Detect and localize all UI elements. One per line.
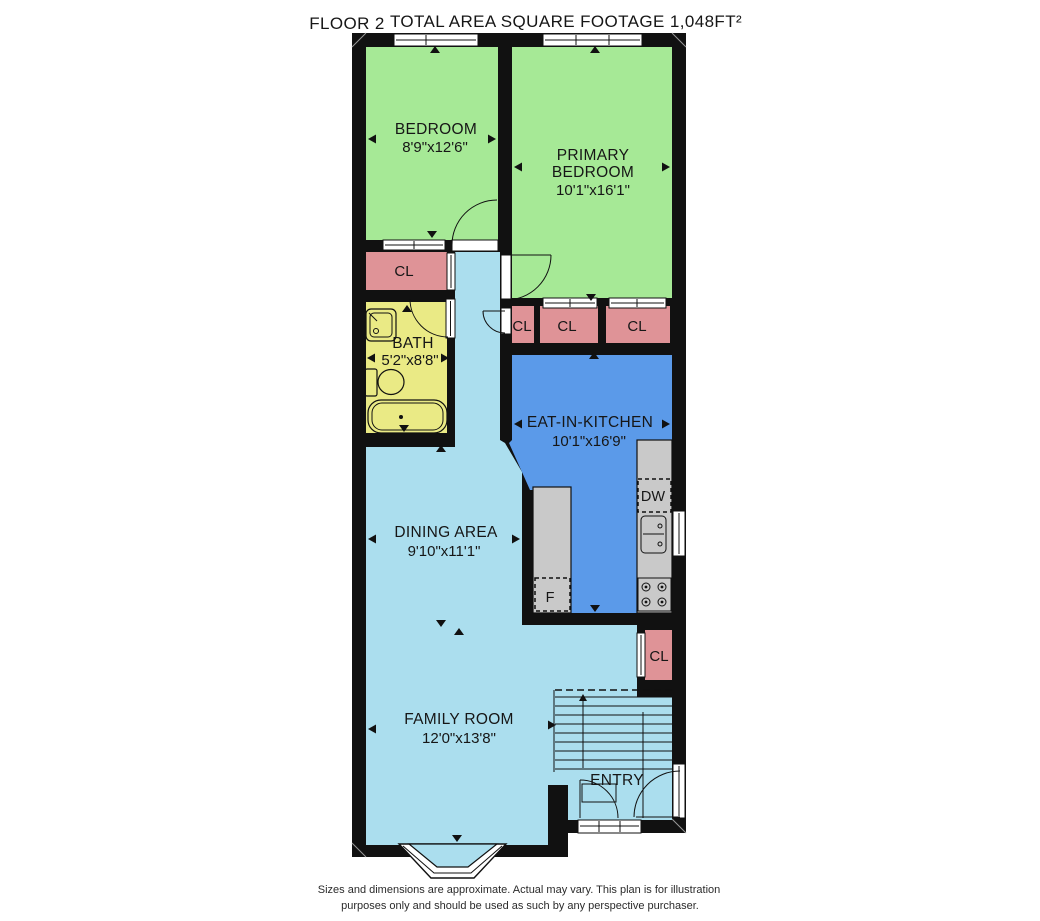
stairs-entry-floor <box>553 690 672 820</box>
kitchen-dims: 10'1"x16'9" <box>552 433 626 450</box>
primary-closet-a-label: CL <box>557 318 576 335</box>
floor-plan-canvas: FLOOR 2 TOTAL AREA SQUARE FOOTAGE 1,048F… <box>0 0 1040 921</box>
floor-label: FLOOR 2 <box>309 14 385 33</box>
kitchen-window <box>673 511 685 556</box>
bedroom-closet-label: CL <box>394 263 413 280</box>
bedroom-label: BEDROOM <box>395 121 477 138</box>
bedroom-dims: 8'9"x12'6" <box>402 139 468 156</box>
primary-bedroom-label-1: PRIMARY <box>557 147 629 164</box>
bath-door-opening <box>446 299 455 338</box>
disclaimer-line-1: Sizes and dimensions are approximate. Ac… <box>318 884 721 896</box>
primary-bedroom-dims: 10'1"x16'1" <box>556 182 630 199</box>
family-room-label: FAMILY ROOM <box>404 711 514 728</box>
bath-dims: 5'2"x8'8" <box>381 352 438 369</box>
primary-door-opening <box>501 255 511 299</box>
primary-closet-a-doors <box>543 298 597 308</box>
primary-bedroom-label-2: BEDROOM <box>552 164 634 181</box>
entry-label: ENTRY <box>590 772 644 789</box>
bedroom-closet-doors <box>383 240 445 250</box>
bedroom-door-opening <box>452 240 498 251</box>
dishwasher-label: DW <box>641 489 665 505</box>
refrigerator-label: F <box>546 590 555 606</box>
small-closet-label: CL <box>512 318 531 335</box>
floor-plan-page: FLOOR 2 TOTAL AREA SQUARE FOOTAGE 1,048F… <box>0 0 1040 921</box>
bath-label: BATH <box>392 335 433 352</box>
family-room-dims: 12'0"x13'8" <box>422 730 496 747</box>
page-title: TOTAL AREA SQUARE FOOTAGE 1,048FT² <box>390 12 742 31</box>
dining-label: DINING AREA <box>394 524 498 541</box>
primary-closet-b-label: CL <box>627 318 646 335</box>
entry-closet-label: CL <box>649 648 668 665</box>
small-closet-opening <box>501 308 511 334</box>
primary-bedroom-window <box>543 34 642 46</box>
dining-dims: 9'10"x11'1" <box>408 543 481 560</box>
primary-closet-b-doors <box>609 298 666 308</box>
entry-window <box>673 764 685 818</box>
kitchen-label: EAT-IN-KITCHEN <box>527 414 653 431</box>
entry-closet-door <box>637 633 645 677</box>
closet-hall-door <box>447 253 455 290</box>
family-entry-wall <box>548 785 568 857</box>
disclaimer-line-2: purposes only and should be used as such… <box>341 900 699 912</box>
bedroom-window <box>394 34 478 46</box>
corridor-floor <box>522 625 637 690</box>
front-door-threshold <box>578 820 641 833</box>
